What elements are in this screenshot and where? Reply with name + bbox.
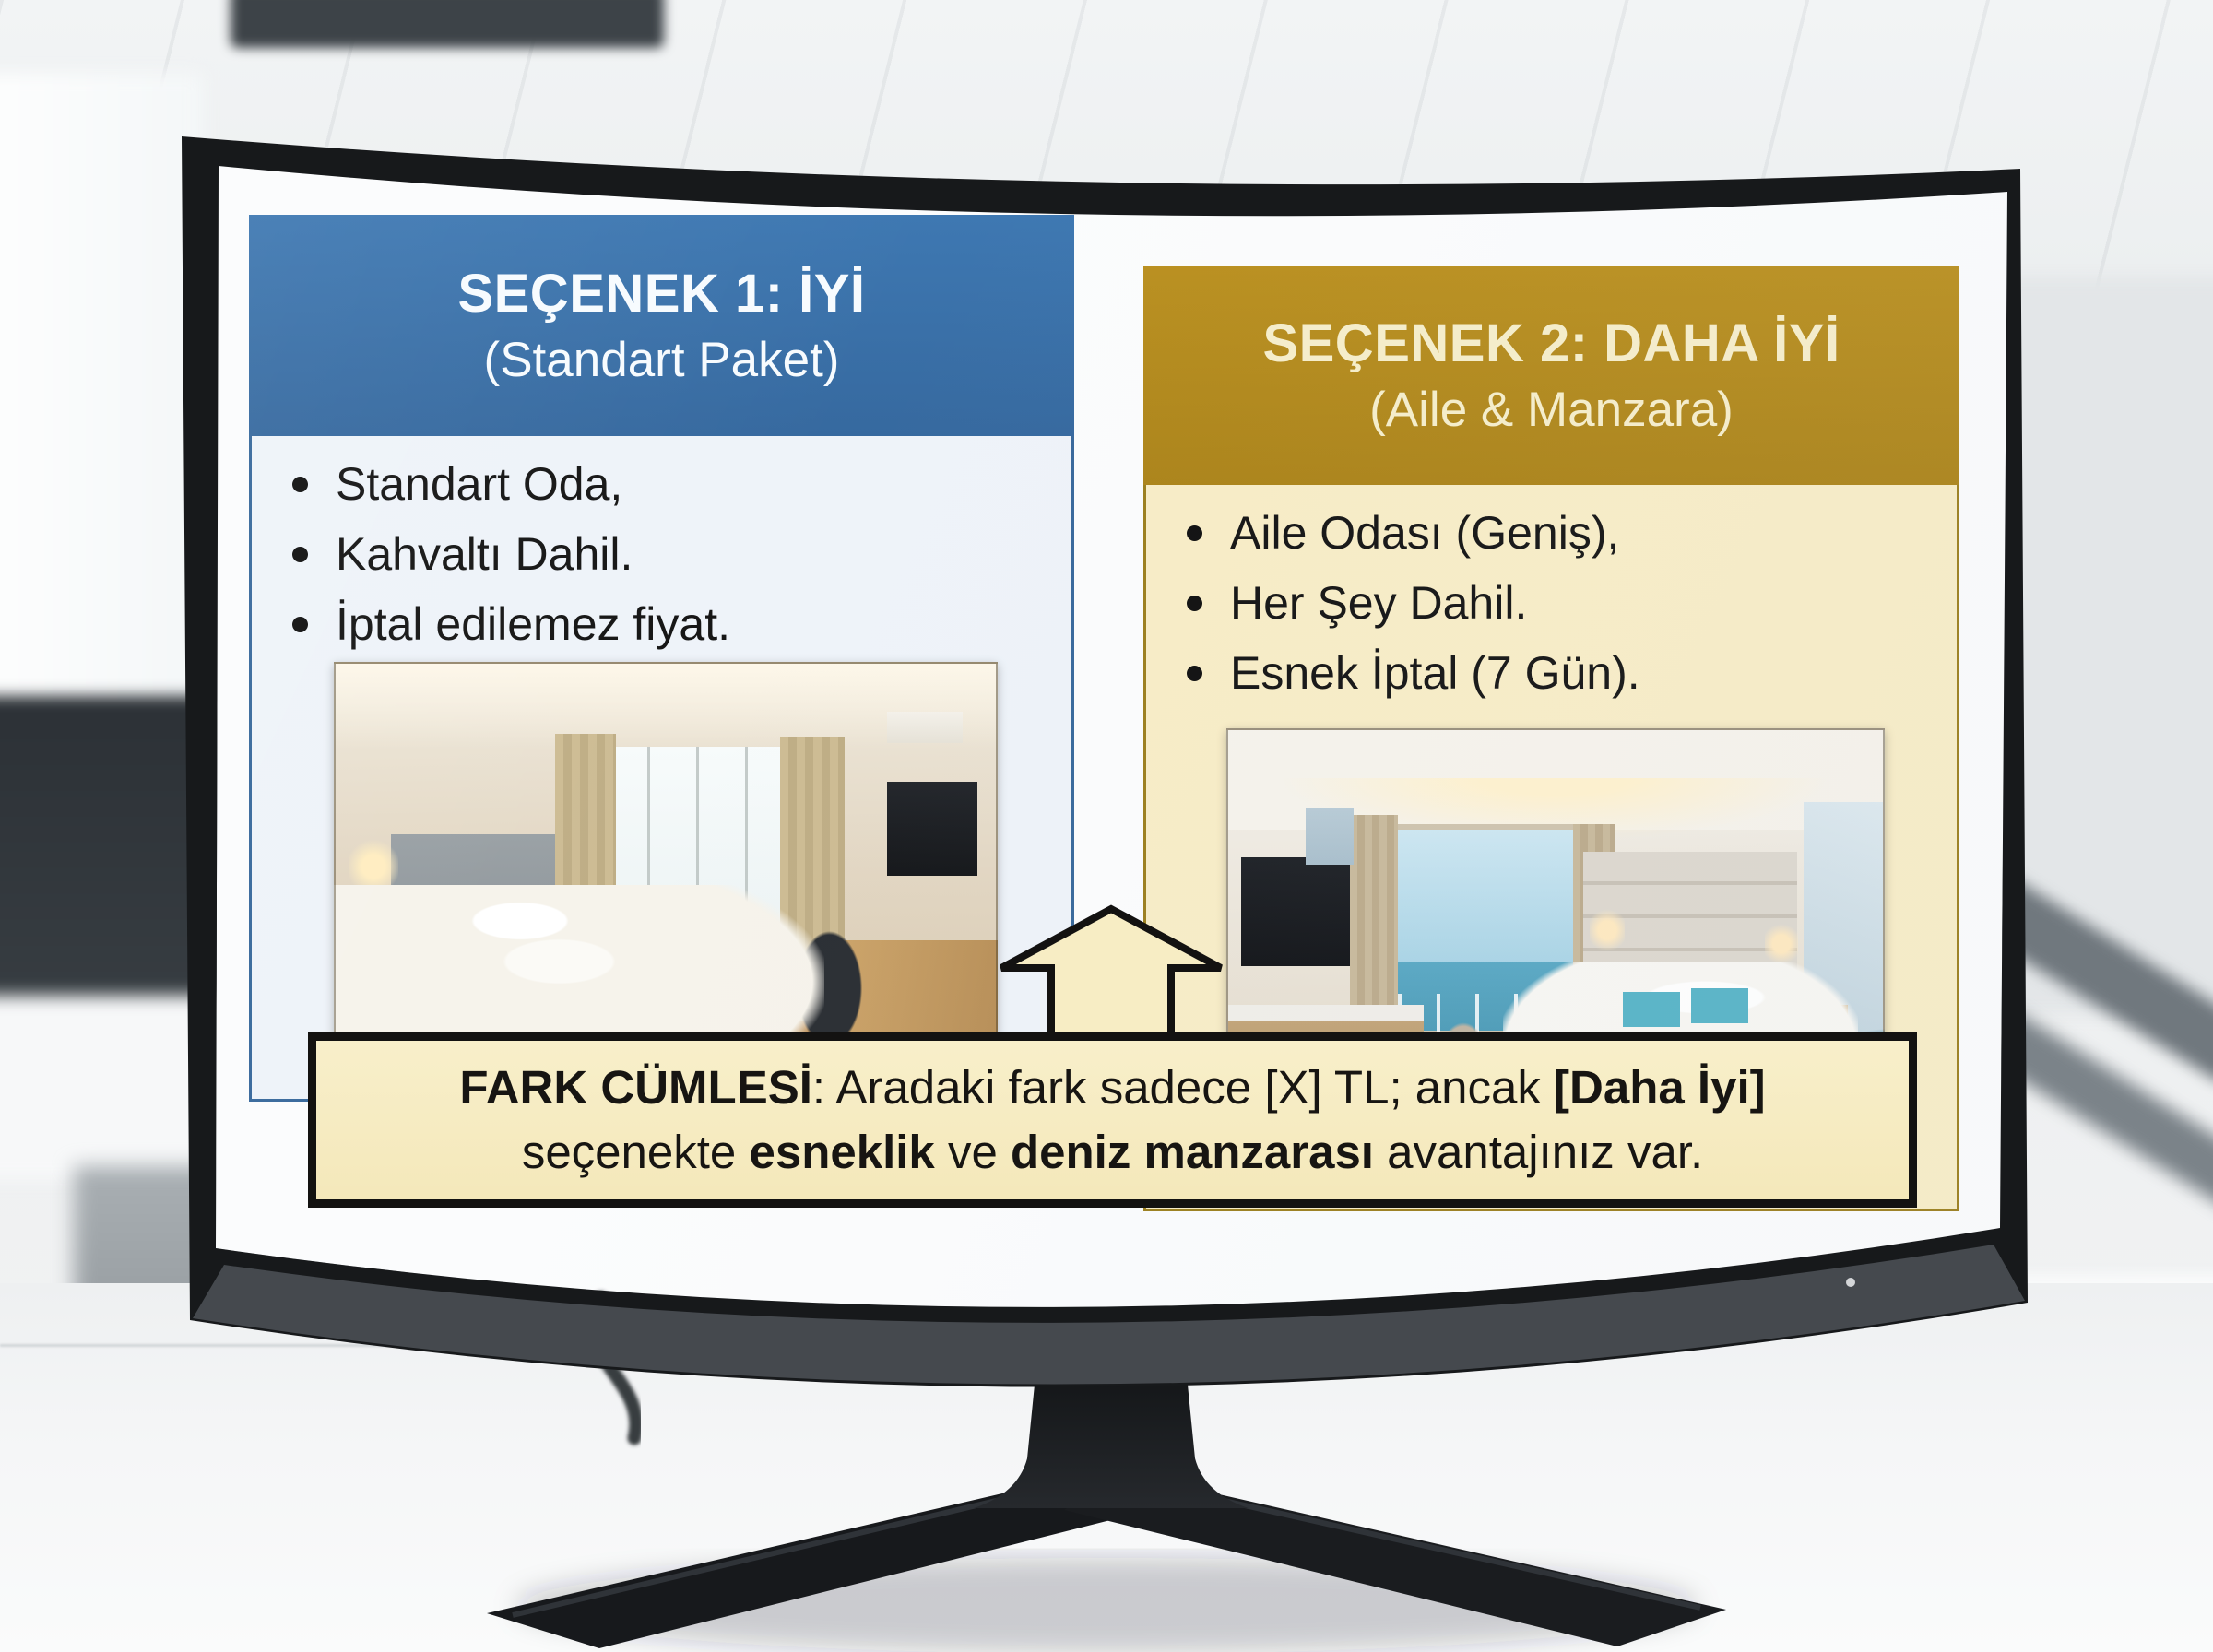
banner-segment: ve (935, 1126, 1011, 1178)
bullet-dot-icon (292, 617, 308, 632)
banner-segment: : Aradaki fark sadece [X] TL; ancak (812, 1061, 1554, 1114)
banner-segment: esneklik (749, 1126, 934, 1178)
standard-room-photo (334, 662, 998, 1091)
banner-segment: deniz manzarası (1011, 1126, 1374, 1178)
list-item: Kahvaltı Dahil. (287, 519, 1053, 589)
option1-subtitle: (Standart Paket) (484, 332, 840, 388)
list-item: İptal edilemez fiyat. (287, 589, 1053, 659)
option1-header: SEÇENEK 1: İYİ (Standart Paket) (249, 215, 1074, 436)
list-item: Her Şey Dahil. (1181, 568, 1938, 638)
option2-bullet-list: Aile Odası (Geniş), Her Şey Dahil. Esnek… (1181, 498, 1938, 708)
list-item: Esnek İptal (7 Gün). (1181, 638, 1938, 708)
bullet-dot-icon (1187, 666, 1202, 681)
banner-segment: FARK CÜMLESİ (459, 1061, 812, 1114)
option2-subtitle: (Aile & Manzara) (1369, 382, 1734, 438)
option1-title: SEÇENEK 1: İYİ (457, 263, 865, 324)
bullet-text: Standart Oda, (336, 449, 622, 519)
banner-segment: avantajınız var. (1374, 1126, 1703, 1178)
bullet-dot-icon (1187, 525, 1202, 541)
up-arrow-icon (988, 903, 1234, 1044)
bullet-dot-icon (1187, 596, 1202, 611)
option1-bullet-list: Standart Oda, Kahvaltı Dahil. İptal edil… (287, 449, 1053, 659)
banner-line-1: FARK CÜMLESİ: Aradaki fark sadece [X] TL… (316, 1056, 1909, 1120)
ceiling-vent (231, 0, 664, 48)
bullet-text: Aile Odası (Geniş), (1230, 498, 1619, 568)
difference-banner: FARK CÜMLESİ: Aradaki fark sadece [X] TL… (308, 1032, 1917, 1208)
bullet-text: Her Şey Dahil. (1230, 568, 1527, 638)
window-left (0, 74, 203, 710)
bullet-dot-icon (292, 547, 308, 562)
front-desk (0, 1283, 2213, 1652)
desk-edge-line (0, 1344, 756, 1347)
bullet-text: Kahvaltı Dahil. (336, 519, 633, 589)
office-scene: { "colors": { "option1_header": "#3b74ad… (0, 0, 2213, 1652)
banner-segment: [Daha İyi] (1554, 1061, 1766, 1114)
bullet-dot-icon (292, 477, 308, 492)
list-item: Standart Oda, (287, 449, 1053, 519)
list-item: Aile Odası (Geniş), (1181, 498, 1938, 568)
banner-segment: seçenekte (522, 1126, 750, 1178)
banner-line-2: seçenekte esneklik ve deniz manzarası av… (316, 1120, 1909, 1185)
bullet-text: Esnek İptal (7 Gün). (1230, 638, 1640, 708)
bullet-text: İptal edilemez fiyat. (336, 589, 730, 659)
option2-header: SEÇENEK 2: DAHA İYİ (Aile & Manzara) (1143, 265, 1959, 485)
option2-title: SEÇENEK 2: DAHA İYİ (1262, 313, 1840, 374)
